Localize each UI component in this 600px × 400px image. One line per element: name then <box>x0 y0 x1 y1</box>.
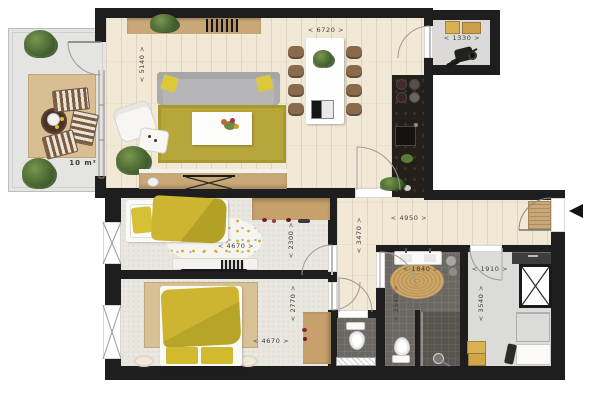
stove-burner <box>396 79 407 90</box>
storage-door-opening <box>424 26 433 58</box>
bed1-pillow-yellow <box>131 206 154 234</box>
utility-door-opening <box>470 245 502 252</box>
wall <box>424 190 565 200</box>
bed2-pillow <box>166 347 198 364</box>
bath-toilet-tank <box>392 355 410 363</box>
dim-utility-width: 1910 <box>472 265 508 273</box>
cup <box>60 117 64 121</box>
sideboard <box>127 18 261 34</box>
wc-door-opening <box>338 310 368 318</box>
flower-decor <box>221 119 227 125</box>
wall <box>433 65 500 75</box>
storage-box <box>445 21 460 34</box>
bedroom2-window <box>103 305 121 359</box>
bedroom1-door-opening <box>328 245 337 272</box>
bedroom1-window <box>103 222 121 264</box>
sink-basin <box>424 254 436 262</box>
bath-towels <box>449 268 457 276</box>
stove-burner <box>409 79 420 90</box>
dim-living-width: 6720 <box>308 26 344 34</box>
bathroom-door-opening <box>376 252 385 288</box>
wall <box>415 310 420 366</box>
stove-burner <box>396 92 407 103</box>
desk-decor <box>303 337 307 341</box>
dining-chair <box>346 46 362 59</box>
floor-plan: 10 m² <box>0 0 600 400</box>
utility-sink-counter <box>512 252 551 264</box>
tv-bench <box>139 173 287 189</box>
entrance-door-opening <box>551 198 565 232</box>
bedside-mat <box>134 355 154 367</box>
dim-bedroom2-width: 4670 <box>253 337 289 345</box>
balcony-area-label: 10 m² <box>69 159 97 167</box>
radiator-decor <box>206 19 238 32</box>
shower-head-icon <box>433 353 444 364</box>
wall <box>95 8 106 42</box>
dim-hall-depth: 3470 <box>355 217 363 253</box>
wall <box>105 366 565 380</box>
tv-flat <box>181 269 247 272</box>
bedroom1-dresser <box>252 198 330 220</box>
utensil-decor <box>404 185 411 191</box>
wall <box>95 8 433 18</box>
washing-machine <box>516 344 551 365</box>
wall <box>424 10 500 20</box>
desk-decor <box>302 328 307 332</box>
wc-radiator <box>336 357 376 366</box>
dining-table-plant <box>313 50 333 67</box>
utility-cabinet <box>516 312 550 342</box>
speaker-slats <box>221 260 244 269</box>
hall-plant <box>380 177 404 190</box>
dim-storage-width: 1330 <box>444 34 480 42</box>
flower-decor <box>234 124 239 129</box>
bowl-decor <box>147 177 159 187</box>
balcony-plant <box>24 30 56 57</box>
dim-bathroom-depth: 3540 <box>392 285 400 321</box>
dresser-decor <box>272 219 276 223</box>
dining-chair <box>288 65 304 78</box>
serving-tray <box>311 100 334 119</box>
hall-floor <box>337 198 551 245</box>
dim-bedroom1-depth: 2300 <box>287 222 295 258</box>
dining-chair <box>288 46 304 59</box>
dining-chair <box>346 103 362 116</box>
dining-chair <box>346 84 362 97</box>
dim-bathroom-width: 1840 <box>403 265 439 273</box>
entrance-arrow-icon <box>569 204 583 218</box>
hall-floor-vertical <box>337 245 376 318</box>
dresser-decor <box>298 219 310 223</box>
bath-stool <box>446 256 456 266</box>
wall <box>376 288 385 368</box>
utility-faucet <box>528 255 538 257</box>
bath-toilet-bowl <box>394 337 410 356</box>
footstool-decor <box>154 139 157 142</box>
sink-basin <box>400 254 412 262</box>
stove-burner <box>409 92 420 103</box>
utility-box <box>468 353 486 366</box>
wall <box>328 272 337 282</box>
dim-bedroom2-depth: 2770 <box>289 285 297 321</box>
shaft-box <box>519 264 552 308</box>
lounge-chair <box>52 87 90 113</box>
bedroom2-desk <box>303 312 331 364</box>
doormat <box>528 201 551 230</box>
vegetable-decor <box>401 154 413 163</box>
wc-toilet-tank <box>346 322 365 330</box>
cup <box>55 125 59 129</box>
footstool-decor <box>148 135 151 138</box>
kitchen-faucet <box>414 123 418 127</box>
storage-box <box>462 22 481 34</box>
wall <box>95 188 355 198</box>
dining-chair <box>346 65 362 78</box>
balcony-plant <box>22 158 55 188</box>
dim-hall-width: 4950 <box>391 214 427 222</box>
bed2-pillow <box>201 347 233 364</box>
vacuum-wheel <box>468 51 477 60</box>
dining-chair <box>288 103 304 116</box>
bed1-duvet <box>151 195 227 244</box>
kitchen-sink <box>395 126 416 146</box>
teapot <box>47 113 60 126</box>
dresser-decor <box>262 218 267 222</box>
bedroom2-door-opening <box>328 282 337 310</box>
flower-decor <box>230 118 235 123</box>
sideboard-plant <box>150 14 178 32</box>
dim-utility-depth: 3540 <box>477 285 485 321</box>
dim-bedroom1-width: 4670 <box>218 242 254 250</box>
bed2-duvet <box>161 286 242 348</box>
dim-living-depth: 5140 <box>138 46 146 82</box>
dining-chair <box>288 84 304 97</box>
coffee-table <box>192 112 252 145</box>
